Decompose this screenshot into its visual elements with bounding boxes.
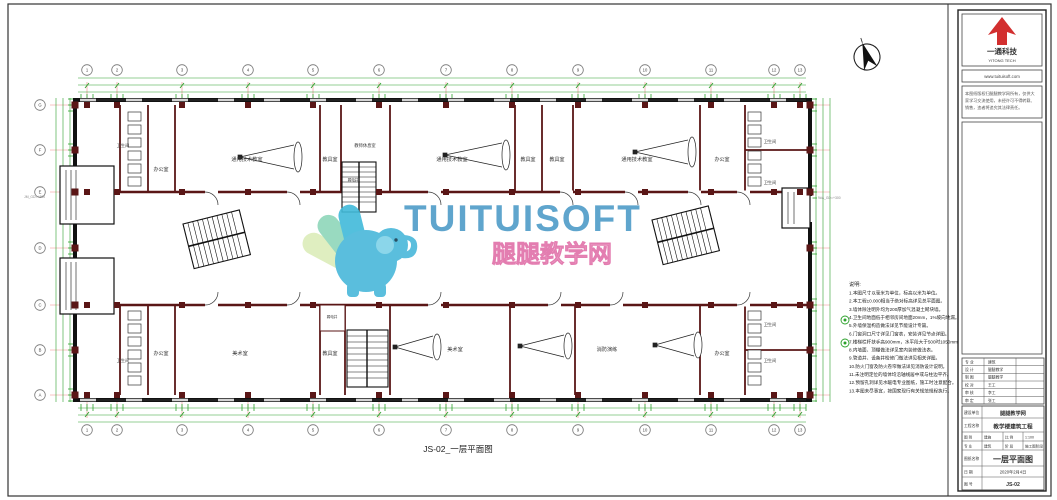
room-label: 办公室 bbox=[714, 156, 729, 163]
cell-label: 阶 段 bbox=[1005, 444, 1014, 449]
cell-label: 比 例 bbox=[1005, 435, 1014, 440]
cell-value: 建施 bbox=[984, 435, 992, 440]
website: www.tuituisoft.com bbox=[984, 74, 1020, 79]
drawing-caption: JS-02_一层平面图 bbox=[423, 444, 492, 454]
room-label: 办公室 bbox=[153, 166, 168, 173]
note-line: 13.本图未尽事宜，按国家现行有关规范规程执行。 bbox=[849, 387, 952, 394]
watermark-brand: TUITUISOFT bbox=[404, 198, 642, 239]
company-name: 一通科技 bbox=[987, 46, 1017, 56]
title-block: 一通科技 YITONG TECH www.tuituisoft.com 本图纸版… bbox=[958, 10, 1046, 491]
note-line: 2.本工程±0.000相当于绝对标高详见总平面图。 bbox=[849, 298, 945, 305]
room-label: 教具室 bbox=[549, 156, 564, 163]
room-label: 卫生间 bbox=[764, 357, 777, 364]
note-line: 11.未注明定位的墙体均沿轴线居中或与柱边平齐。 bbox=[849, 371, 952, 378]
cell-value: 1:100 bbox=[1025, 436, 1034, 440]
axis-label: 12 bbox=[772, 68, 777, 73]
sign-value: 建筑 bbox=[988, 359, 996, 364]
project-label: 工程名称 bbox=[964, 423, 979, 428]
notes-lines: 1.本图尺寸以毫米为单位，标高以米为单位。2.本工程±0.000相当于绝对标高详… bbox=[849, 290, 963, 395]
sign-table: 专 业建筑设 计腿腿教学制 图腿腿教学校 对王工审 核李工审 定张工 bbox=[962, 359, 1044, 402]
note-line: 4.卫生间地面低于相邻房间地面20mm，1%坡向地漏。 bbox=[849, 314, 960, 321]
drawing-name: 一层平面图 bbox=[993, 455, 1033, 464]
note-line: 10.防火门窗及防火卷帘做法详见消防设计说明。 bbox=[849, 363, 947, 370]
room-label: 卫生间 bbox=[117, 142, 130, 149]
sign-label: 审 核 bbox=[965, 390, 974, 395]
sign-label: 审 定 bbox=[965, 398, 974, 403]
room-label: 卫生间 bbox=[764, 321, 777, 328]
date-value: 2020年2月4日 bbox=[1000, 469, 1027, 476]
axis-label: G bbox=[38, 103, 41, 108]
sign-label: 校 对 bbox=[965, 382, 974, 387]
sign-value: 李工 bbox=[988, 390, 996, 395]
sign-label: 制 图 bbox=[965, 375, 974, 380]
note-line: 3.墙体除注明外均为200厚加气混凝土砌块墙。 bbox=[849, 306, 943, 313]
axis-label: 12 bbox=[772, 428, 777, 433]
owner-value: 腿腿教学网 bbox=[1000, 409, 1026, 417]
room-label: 办公室 bbox=[714, 350, 729, 357]
note-line: 1.本图尺寸以毫米为单位，标高以米为单位。 bbox=[849, 290, 940, 297]
detail-callouts bbox=[841, 316, 849, 347]
axis-label: F bbox=[39, 148, 42, 153]
sign-label: 专 业 bbox=[965, 359, 974, 364]
note-line: 7.楼梯栏杆扶手高900mm，水平段大于500时1050mm。 bbox=[849, 338, 963, 345]
number-label: 图 号 bbox=[964, 482, 973, 487]
elevation-note-right: 9#A_GD=+300 bbox=[818, 196, 841, 200]
room-label: 教师休息室 bbox=[354, 142, 376, 149]
room-label: 消防演练 bbox=[597, 345, 618, 353]
cell-label: 图 别 bbox=[964, 435, 973, 440]
room-label: 办公室 bbox=[153, 350, 168, 357]
note-line: 12.预留孔洞详见水暖电专业图纸，施工时注意配合。 bbox=[849, 379, 956, 386]
room-label: 卫生间 bbox=[117, 357, 130, 364]
note-line: 6.门窗洞口尺寸详见门窗表，安装详见节点详图。 bbox=[849, 330, 949, 337]
project-name: 教学楼建筑工程 bbox=[992, 423, 1033, 431]
room-label: 通用技术教室 bbox=[436, 155, 467, 163]
axis-label: 11 bbox=[709, 68, 714, 73]
cell-value: 施工图阶段 bbox=[1025, 444, 1043, 449]
room-label: 通用技术教室 bbox=[231, 155, 262, 163]
note-line: 5.外墙保温构造做法详见节能设计专篇。 bbox=[849, 322, 931, 329]
watermark-brand-cn: 腿腿教学网 bbox=[492, 240, 612, 268]
axis-label: 13 bbox=[798, 68, 803, 73]
room-label: 美术室 bbox=[447, 345, 463, 353]
sign-label: 设 计 bbox=[965, 367, 974, 372]
axis-label: 13 bbox=[798, 428, 803, 433]
axis-label: 10 bbox=[643, 68, 648, 73]
disclaimer-line: 家学习交流使用，未经许可不得转载、 bbox=[965, 97, 1035, 103]
cell-label: 专 业 bbox=[964, 444, 973, 449]
axis-label: A bbox=[39, 393, 42, 398]
owner-label: 建设单位 bbox=[964, 410, 979, 415]
room-label: 教具室 bbox=[322, 156, 337, 163]
sign-value: 腿腿教学 bbox=[988, 367, 1003, 372]
room-label: 卫生间 bbox=[764, 179, 777, 186]
room-label: 卫生间 bbox=[764, 138, 777, 145]
date-label: 日 期 bbox=[964, 470, 973, 475]
room-label: 弱电井 bbox=[348, 177, 359, 182]
cell-value: 建筑 bbox=[984, 444, 992, 449]
note-line: 8.内墙面、顶棚做法详见室内装修做法表。 bbox=[849, 347, 936, 354]
axis-label: D bbox=[38, 246, 41, 251]
room-label: 教具室 bbox=[322, 350, 337, 357]
elevation-note-left: JM_GD=+300 bbox=[24, 195, 45, 199]
notes: 说明: 1.本图尺寸以毫米为单位，标高以米为单位。2.本工程±0.000相当于绝… bbox=[849, 280, 963, 394]
north-arrow-icon bbox=[848, 34, 883, 73]
disclaimer-line: 本图纸版权归腿腿教学网所有，仅供大 bbox=[965, 90, 1035, 96]
name-label: 图纸名称 bbox=[964, 456, 979, 461]
room-label: 美术室 bbox=[232, 349, 248, 357]
company-name-en: YITONG TECH bbox=[988, 58, 1015, 63]
disclaimer-line: 销售，违者将追究其法律责任。 bbox=[965, 104, 1022, 110]
axis-label: C bbox=[38, 303, 41, 308]
axis-label: 11 bbox=[709, 428, 714, 433]
sheet-svg: 1122334455667788991010111112121313GFEDCB… bbox=[0, 0, 1057, 500]
sign-value: 张工 bbox=[988, 398, 996, 403]
room-label: 教具室 bbox=[520, 156, 535, 163]
notes-title: 说明: bbox=[849, 280, 861, 288]
room-label: 弱电井 bbox=[327, 314, 338, 319]
sign-value: 王工 bbox=[988, 383, 996, 387]
axis-label: B bbox=[39, 348, 42, 353]
note-line: 9.管道井、设备井检修门做法详见相关详图。 bbox=[849, 355, 940, 362]
axis-label: 10 bbox=[643, 428, 648, 433]
drawing-number: JS-02 bbox=[1006, 482, 1020, 488]
axis-label: E bbox=[39, 190, 42, 195]
room-label: 通用技术教室 bbox=[621, 155, 652, 163]
sign-value: 腿腿教学 bbox=[988, 375, 1003, 380]
drawing-sheet: 1122334455667788991010111112121313GFEDCB… bbox=[0, 0, 1057, 500]
